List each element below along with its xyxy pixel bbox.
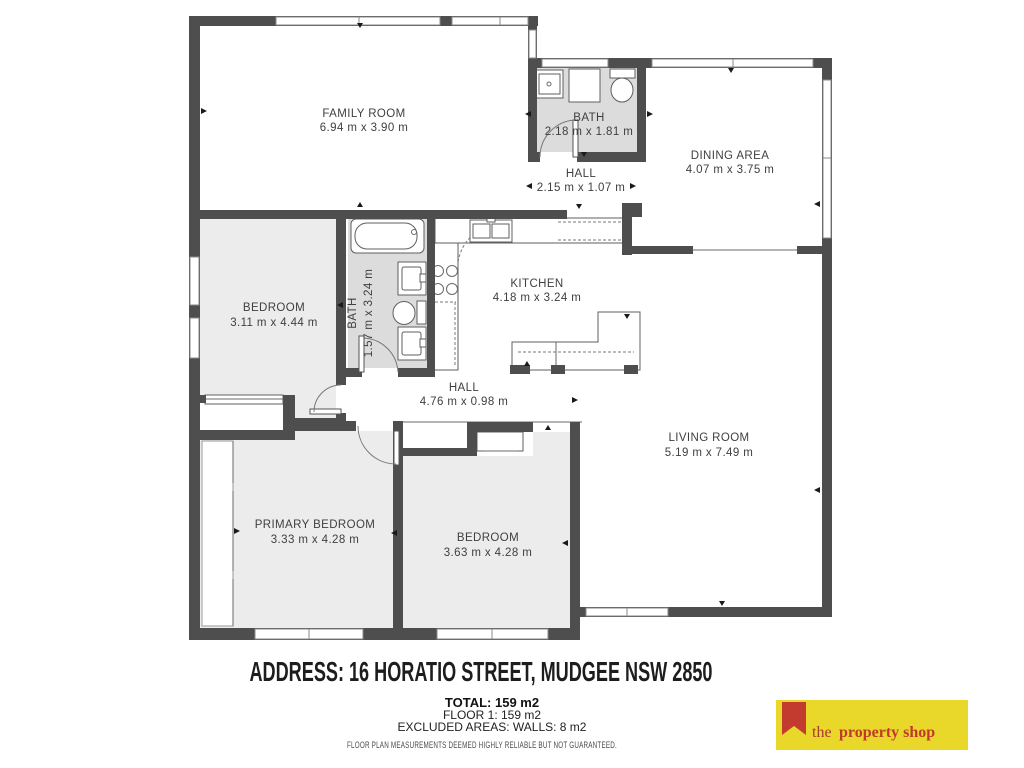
- arrow-icon: [576, 204, 582, 209]
- primary-bedroom-dims: 3.33 m x 4.28 m: [271, 534, 359, 546]
- bedroom-left-label: BEDROOM: [243, 302, 305, 314]
- agency-logo: the property shop: [776, 700, 968, 750]
- family-room-dims: 6.94 m x 3.90 m: [320, 122, 408, 134]
- basin-icon: [536, 70, 563, 98]
- footer: ADDRESS: 16 HORATIO STREET, MUDGEE NSW 2…: [250, 656, 713, 750]
- arrow-icon: [572, 397, 578, 403]
- window-bedroom-left-1: [190, 257, 199, 305]
- bedroom-left-dims: 3.11 m x 4.44 m: [230, 317, 318, 329]
- window-living-bottom: [586, 608, 668, 616]
- bedroom-bottom-dims: 3.63 m x 4.28 m: [444, 547, 532, 559]
- kitchen-sink-icon: [470, 217, 512, 242]
- shower-icon: [569, 69, 600, 102]
- logo-word-rest: property shop: [839, 724, 935, 741]
- window-dining-right: [823, 80, 831, 238]
- arrow-icon: [647, 111, 653, 117]
- arrow-icon: [728, 68, 734, 73]
- living-room-dims: 5.19 m x 7.49 m: [665, 447, 753, 459]
- dining-area-dims: 4.07 m x 3.75 m: [686, 164, 774, 176]
- disclaimer-text: FLOOR PLAN MEASUREMENTS DEEMED HIGHLY RE…: [347, 740, 617, 750]
- living-room-label: LIVING ROOM: [668, 432, 749, 444]
- vanity-sink-icon-2: [398, 327, 426, 360]
- kitchen-island: [510, 312, 640, 374]
- bath-middle-label: BATH: [347, 297, 359, 328]
- family-room-label: FAMILY ROOM: [322, 108, 405, 120]
- primary-bedroom-label: PRIMARY BEDROOM: [255, 519, 376, 531]
- window-dining-top: [652, 59, 813, 67]
- excluded-area-text: EXCLUDED AREAS: WALLS: 8 m2: [398, 720, 587, 734]
- arrow-icon: [545, 425, 551, 430]
- bath-top-dims: 2.18 m x 1.81 m: [545, 126, 633, 138]
- arrow-icon: [526, 183, 532, 189]
- arrow-icon: [357, 202, 363, 207]
- address-text: ADDRESS: 16 HORATIO STREET, MUDGEE NSW 2…: [250, 656, 713, 687]
- arrow-icon: [630, 183, 636, 189]
- robe-primary-bedroom: [202, 441, 233, 626]
- bath-top-label: BATH: [573, 112, 604, 124]
- hall-top-dims: 2.15 m x 1.07 m: [537, 182, 625, 194]
- hall-main-dims: 4.76 m x 0.98 m: [420, 396, 508, 408]
- bedroom-bottom-label: BEDROOM: [457, 532, 519, 544]
- robe-bedroom-bottom: [477, 432, 523, 451]
- vanity-sink-icon: [398, 262, 426, 295]
- kitchen-label: KITCHEN: [510, 278, 563, 290]
- window-primary-bottom: [255, 629, 363, 639]
- window-bedroom-left-2: [190, 318, 199, 358]
- arrow-icon: [201, 108, 207, 114]
- bathtub-icon: [351, 219, 424, 253]
- robe-bedroom-left: [205, 395, 283, 404]
- logo-word-the: the: [812, 724, 832, 741]
- hall-main-label: HALL: [449, 382, 480, 394]
- bath-middle-dims: 1.57 m x 3.24 m: [363, 269, 375, 357]
- kitchen-dims: 4.18 m x 3.24 m: [493, 292, 581, 304]
- kitchen-counter: [435, 218, 630, 262]
- floor-plan: FAMILY ROOM 6.94 m x 3.90 m BATH 2.18 m …: [0, 0, 1024, 768]
- window-connector: [529, 30, 536, 58]
- floor-plan-page: FAMILY ROOM 6.94 m x 3.90 m BATH 2.18 m …: [0, 0, 1024, 768]
- hall-top-label: HALL: [566, 168, 597, 180]
- window-family-top-2: [452, 17, 528, 25]
- toilet-icon-2: [610, 69, 635, 102]
- arrow-icon: [814, 487, 820, 493]
- toilet-icon: [393, 301, 426, 325]
- room-bedroom-bottom: [403, 432, 570, 628]
- arrow-icon: [719, 601, 725, 606]
- dining-area-label: DINING AREA: [691, 150, 770, 162]
- window-bath-top: [542, 59, 608, 67]
- arrow-icon: [814, 201, 820, 207]
- window-bedroom-bottom: [437, 629, 548, 639]
